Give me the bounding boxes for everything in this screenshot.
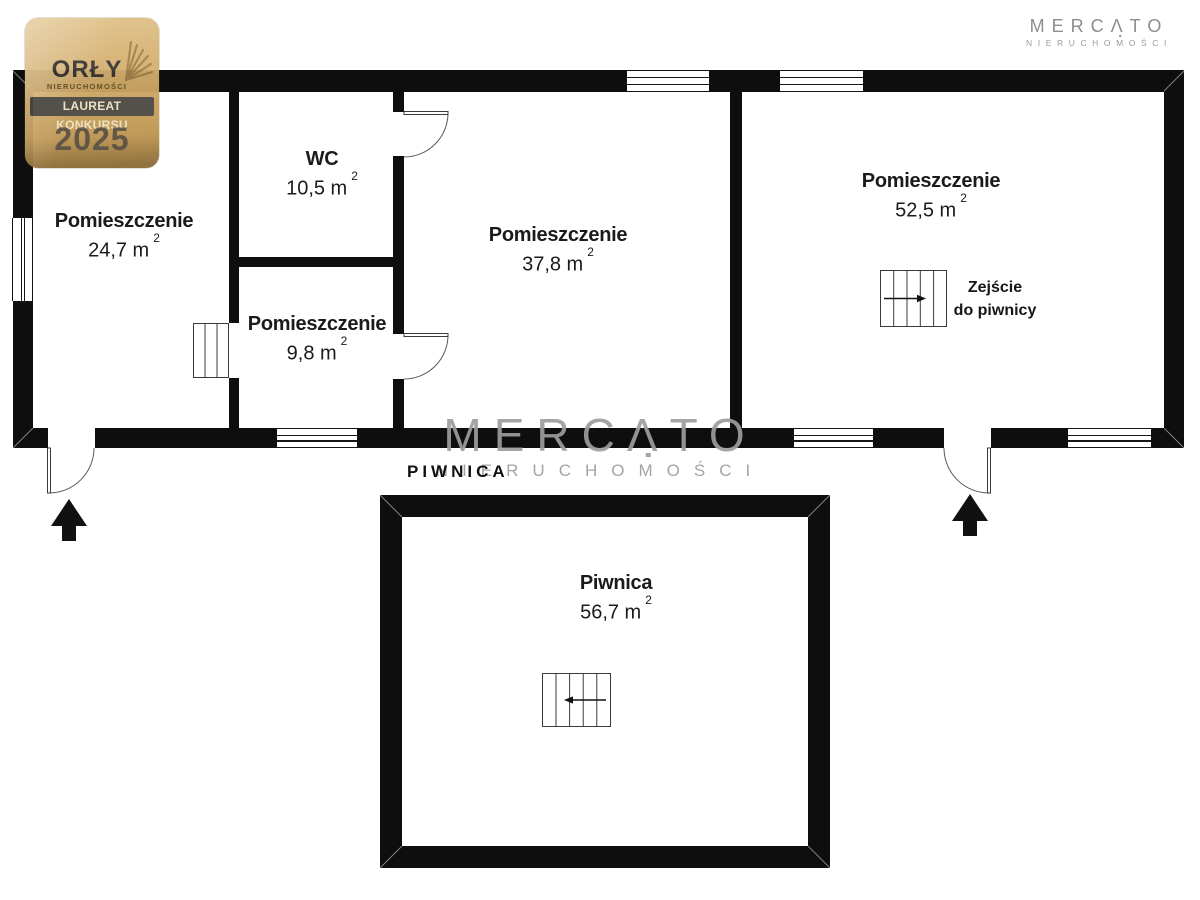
basement-wall-top [380,495,830,517]
door-gap-room98 [393,334,404,379]
room-label-9-8: Pomieszczenie 9,8 m2 [248,312,386,367]
room-label-52-5: Pomieszczenie 52,5 m2 [862,169,1000,224]
logo-brand-name: MERCΛTO [1026,14,1172,38]
entrance-arrow-icon [51,499,87,543]
room-area: 9,8 m [287,343,337,365]
door-swing-icon [404,111,452,159]
passage-gap-stairs [229,323,239,378]
logo-tagline: NIERUCHOMOŚCI [1026,38,1172,49]
wall-top [13,70,1184,92]
room-name: Pomieszczenie [248,312,386,336]
wall-right [1164,70,1184,448]
room-name: WC [286,147,358,171]
brand-logo: MERCΛTO NIERUCHOMOŚCI [1026,14,1172,49]
room-name: Pomieszczenie [489,223,627,247]
stairs-annotation: Zejście do piwnicy [954,276,1037,322]
badge-year: 2025 [25,121,159,158]
wall-wc-room98 [229,257,393,267]
door-gap-entrance-right [944,428,991,448]
door-swing-icon [940,448,992,498]
room-name: Pomieszczenie [55,209,193,233]
window-icon [794,428,873,448]
room-label-24-7: Pomieszczenie 24,7 m2 [55,209,193,264]
room-name: Piwnica [580,571,652,595]
window-icon [277,428,357,448]
door-swing-icon [46,448,98,498]
badge-banner: LAUREAT KONKURSU [30,97,154,116]
window-icon [1068,428,1151,448]
room-label-piwnica: Piwnica 56,7 m2 [580,571,652,626]
entrance-arrow-icon [952,494,988,538]
basement-wall-bottom [380,846,830,868]
room-label-wc: WC 10,5 m2 [286,147,358,202]
room-area: 56,7 m [580,602,641,624]
room-area: 52,5 m [895,200,956,222]
award-badge: ORŁY NIERUCHOMOŚCI LAUREAT KONKURSU 2025 [25,18,159,168]
window-icon [627,70,709,92]
room-area: 10,5 m [286,178,347,200]
floorplan-page: Pomieszczenie 24,7 m2 WC 10,5 m2 Pomiesz… [0,0,1200,900]
stairs-basement-icon [542,673,611,727]
basement-wall-right [808,495,830,868]
door-gap-wc [393,112,404,156]
watermark-brand-name: MERCΛTO [436,410,764,460]
badge-title: ORŁY [25,56,149,84]
window-icon [12,218,33,301]
room-area: 24,7 m [88,240,149,262]
room-area: 37,8 m [522,254,583,276]
basement-wall-left [380,495,402,868]
stairs-icon [193,323,229,378]
window-icon [780,70,863,92]
door-gap-entrance-left [48,428,95,448]
stairs-to-basement-icon [880,270,947,327]
wall-center-right [730,92,742,428]
room-name: Pomieszczenie [862,169,1000,193]
badge-subtitle: NIERUCHOMOŚCI [25,82,149,91]
room-label-37-8: Pomieszczenie 37,8 m2 [489,223,627,278]
basement-section-label: PIWNICA [407,462,509,482]
door-swing-icon [404,333,452,381]
